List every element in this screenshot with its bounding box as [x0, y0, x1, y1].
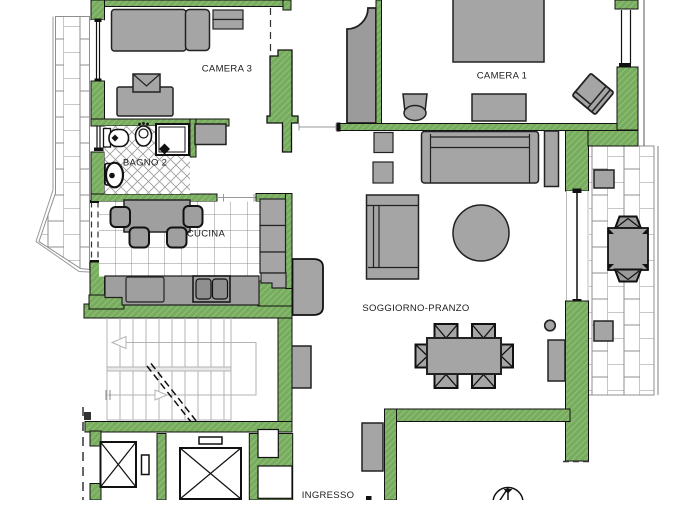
svg-text:BAGNO 2: BAGNO 2 — [123, 158, 167, 169]
svg-text:CUCINA: CUCINA — [187, 229, 226, 240]
svg-text:SOGGIORNO-PRANZO: SOGGIORNO-PRANZO — [362, 303, 469, 314]
svg-text:INGRESSO: INGRESSO — [302, 490, 355, 500]
svg-text:CAMERA 1: CAMERA 1 — [477, 71, 527, 82]
svg-text:CAMERA 3: CAMERA 3 — [202, 64, 252, 75]
